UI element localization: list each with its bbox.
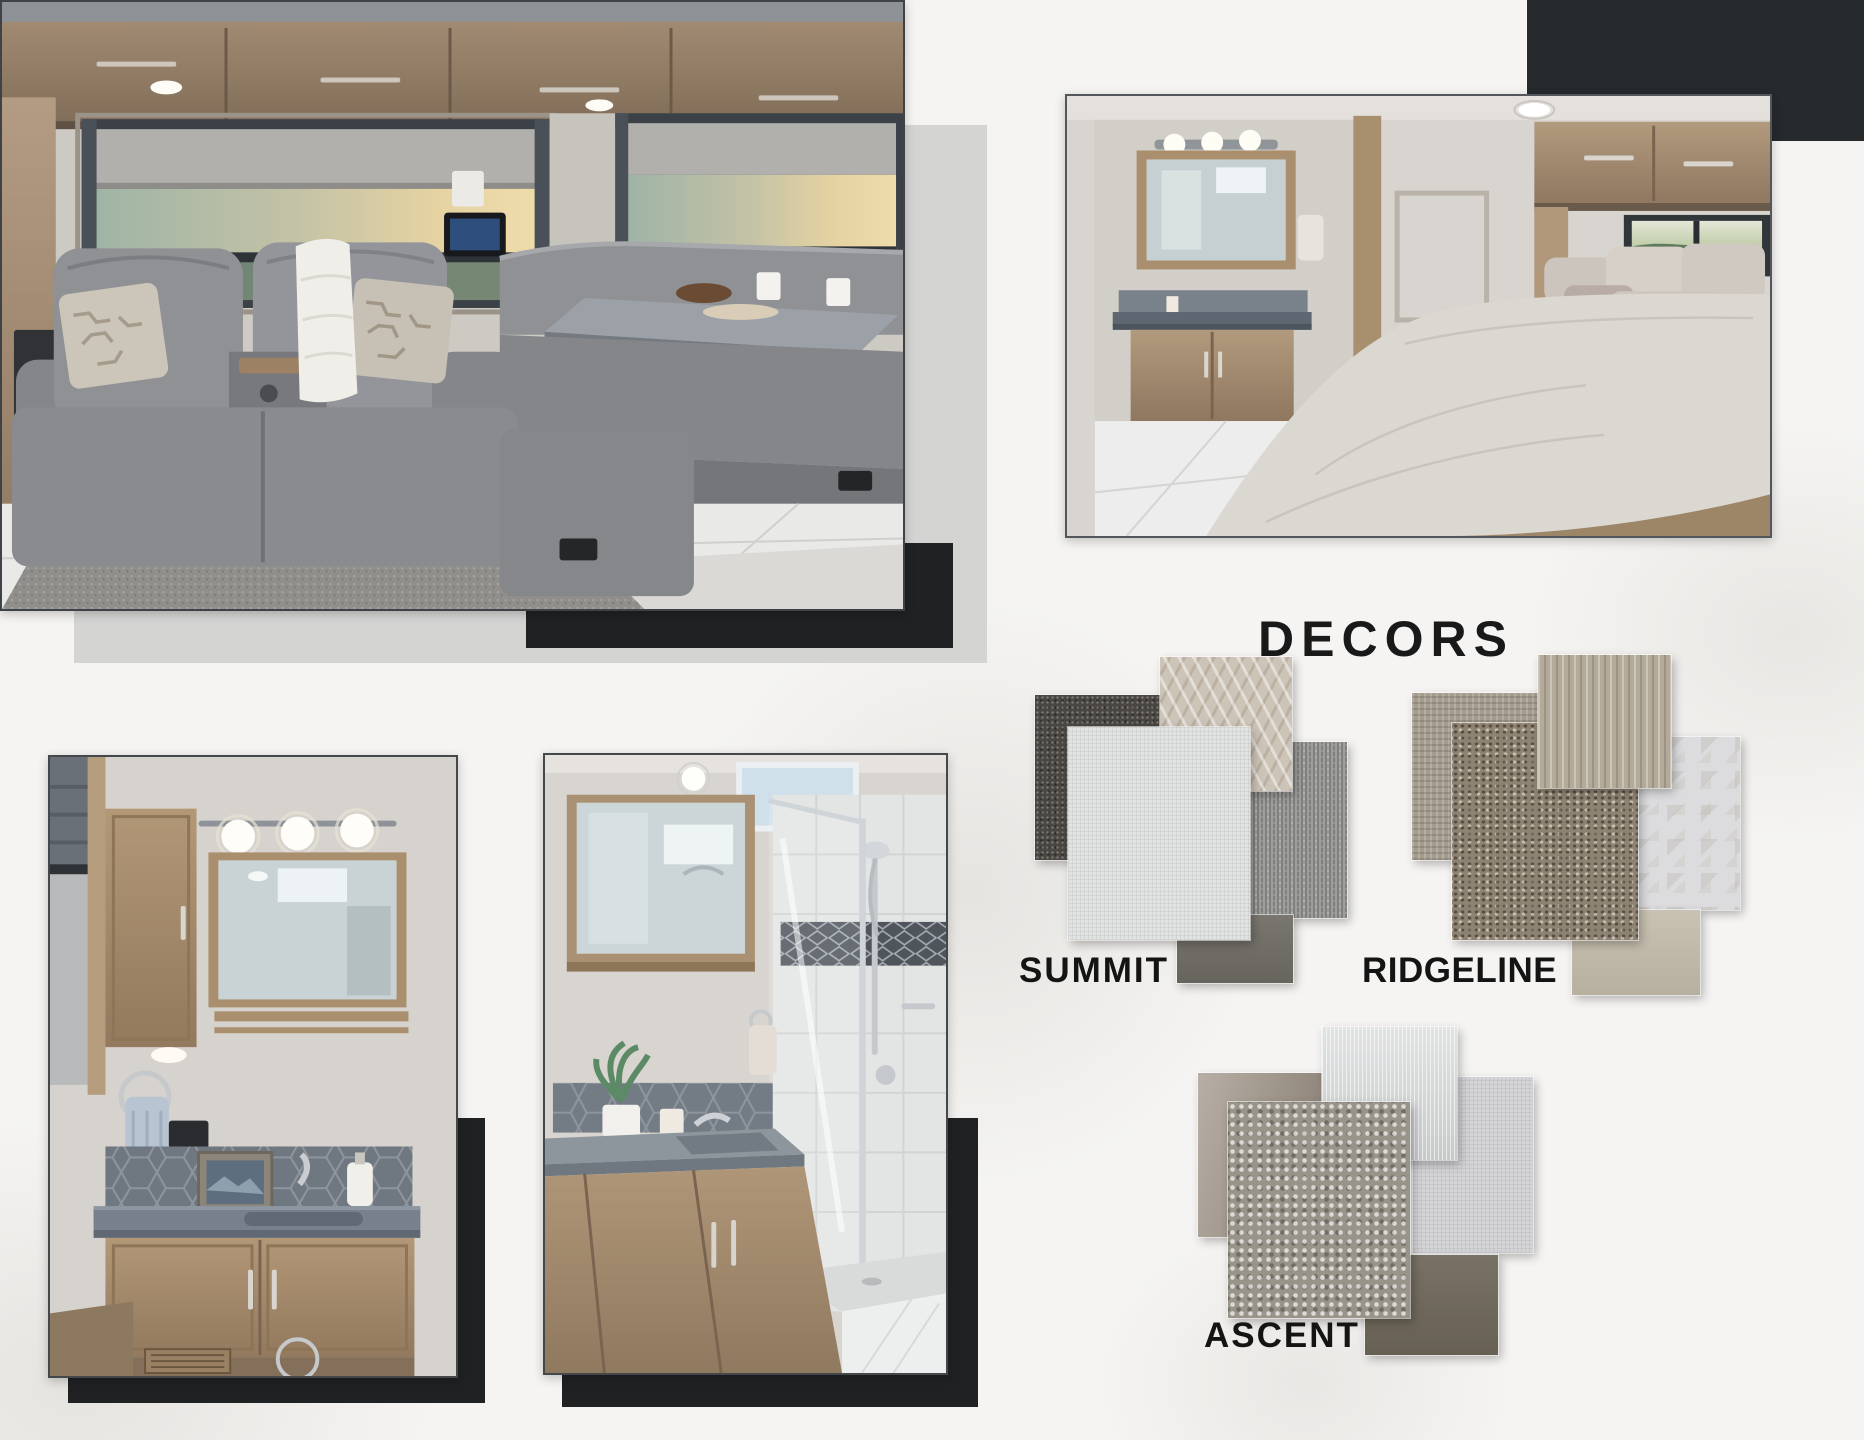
summit-swatch-geometric-taupe-fabric bbox=[1160, 657, 1292, 791]
ridgeline-swatch-striped-sand-fabric bbox=[1538, 655, 1671, 788]
decor-label-ascent: ASCENT bbox=[1204, 1316, 1360, 1356]
summit-swatch-charcoal-carpet bbox=[1035, 695, 1185, 860]
bedroom-illustration bbox=[1067, 96, 1770, 536]
decors-heading: DECORS bbox=[1258, 610, 1514, 668]
summit-swatch-slate-gray-solid bbox=[1177, 915, 1293, 983]
ascent-swatch-dark-taupe-solid bbox=[1365, 1255, 1498, 1355]
shower-bathroom-illustration bbox=[545, 755, 946, 1373]
shower-bathroom-photo bbox=[543, 753, 948, 1375]
living-room-illustration bbox=[2, 2, 903, 609]
brochure-page: DECORS SUMMIT RIDGELINE ASCENT bbox=[0, 0, 1864, 1440]
summit-swatch-heather-gray-fabric bbox=[1235, 742, 1347, 918]
ascent-swatch-silver-texture-fabric bbox=[1322, 1027, 1457, 1160]
ridgeline-swatch-taupe-weave-fabric bbox=[1412, 693, 1562, 860]
decor-label-summit: SUMMIT bbox=[1019, 951, 1169, 991]
ascent-swatch-pebbled-silver-fabric bbox=[1228, 1102, 1410, 1318]
vanity-bathroom-photo bbox=[48, 755, 458, 1378]
ridgeline-swatch-brown-tweed-fabric bbox=[1452, 723, 1638, 940]
living-room-photo bbox=[0, 0, 905, 611]
ridgeline-swatch-khaki-solid bbox=[1572, 910, 1700, 995]
ascent-swatch-pale-gray-linen-fabric bbox=[1413, 1077, 1533, 1253]
ridgeline-swatch-white-geometric-fabric bbox=[1633, 737, 1740, 910]
summit-swatch-ivory-linen-fabric bbox=[1068, 727, 1250, 940]
vanity-bathroom-illustration bbox=[50, 757, 456, 1376]
decor-label-ridgeline: RIDGELINE bbox=[1362, 951, 1557, 991]
ascent-swatch-mocha-shimmer-fabric bbox=[1198, 1073, 1348, 1237]
bedroom-photo bbox=[1065, 94, 1772, 538]
